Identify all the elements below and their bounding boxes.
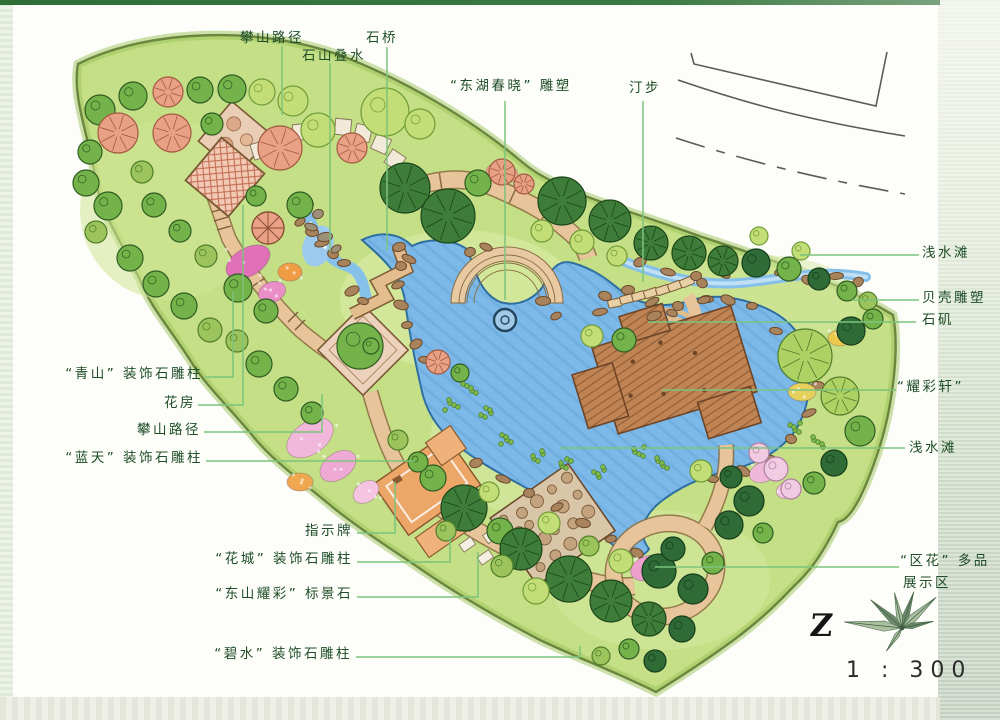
adjacent-road-lines: [676, 52, 905, 194]
north-arrow-leaf-icon: [836, 578, 966, 663]
north-letter: Z: [808, 608, 834, 644]
label-bishui-pillar: “碧水” 装饰石雕柱: [214, 646, 352, 662]
scanned-plan-page: 攀山路径 石山叠水 石桥 “东湖春晓” 雕塑 汀步 浅水滩 贝壳雕塑 石矶 “耀…: [0, 0, 1000, 720]
label-shell-sculpture: 贝壳雕塑: [922, 290, 986, 306]
label-lantian-pillar: “蓝天” 装饰石雕柱: [65, 450, 203, 466]
label-shallow-beach-1: 浅水滩: [922, 245, 970, 261]
label-district-flower-1: “区花” 多品: [900, 553, 990, 569]
label-climb-path-left: 攀山路径: [137, 422, 201, 438]
label-shallow-beach-2: 浅水滩: [909, 440, 957, 456]
round-pergola: [252, 212, 284, 244]
label-huacheng-pillar: “花城” 装饰石雕柱: [215, 551, 353, 567]
label-climb-path-top: 攀山路径: [240, 30, 304, 46]
label-stone-bridge: 石桥: [366, 30, 398, 46]
label-sign-board: 指示牌: [305, 523, 353, 539]
label-rock-waterfall: 石山叠水: [302, 48, 366, 64]
label-deck-pavilion: “耀彩轩”: [897, 379, 964, 395]
lake-sculpture: [494, 309, 516, 331]
scale-annotation: 1 : 300: [846, 658, 972, 683]
label-stepping-stones: 汀步: [629, 80, 661, 96]
label-rock-outcrop: 石矶: [922, 312, 954, 328]
label-qingshan-pillar: “青山” 装饰石雕柱: [65, 366, 203, 382]
label-lake-sculpture: “东湖春晓” 雕塑: [450, 78, 572, 94]
label-landmark-stone: “东山耀彩” 标景石: [215, 586, 353, 602]
label-flower-house: 花房: [164, 395, 196, 411]
